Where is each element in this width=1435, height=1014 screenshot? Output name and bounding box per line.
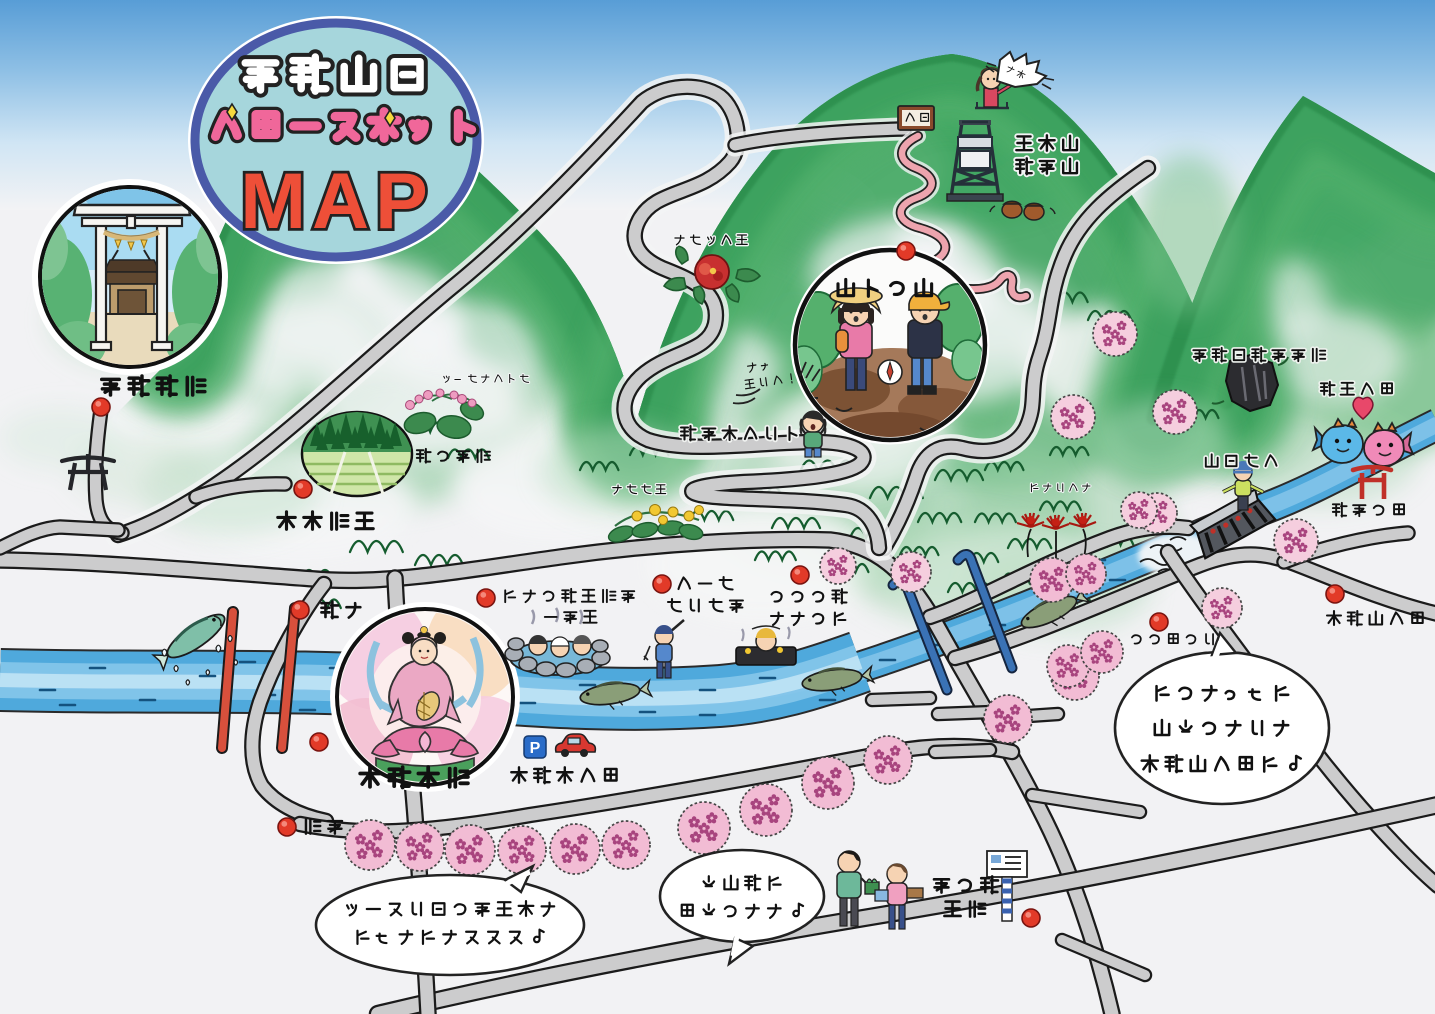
svg-text:P: P bbox=[530, 740, 541, 757]
svg-text:MAP: MAP bbox=[240, 156, 434, 245]
